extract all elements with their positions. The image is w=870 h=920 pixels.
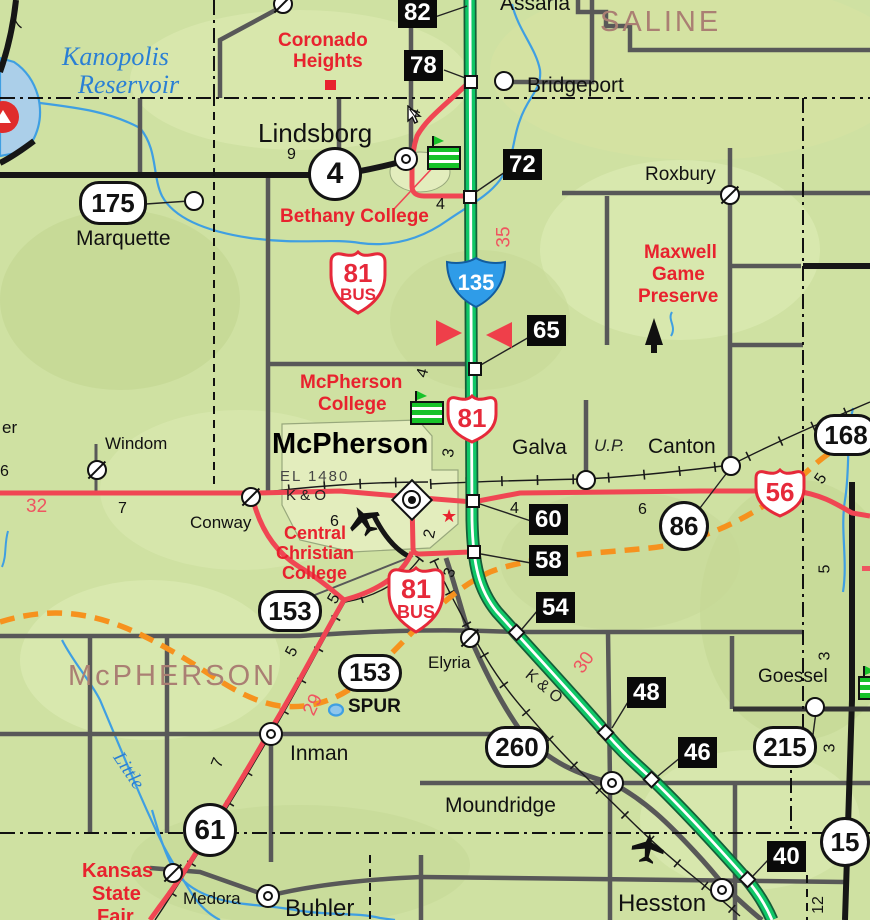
distance-7-conway: 7 [118,500,127,518]
town-circle-conway [241,487,261,507]
poi-mcpherson-college-line2: College [318,394,387,415]
city-label-medora: Medora [183,889,241,909]
exit-box-46: 46 [678,737,717,768]
city-label-elyria: Elyria [428,653,471,673]
town-circle-hesston [710,878,734,902]
landmark-star-icon: ★ [441,506,457,527]
exit-box-54: 54 [536,592,575,623]
milepost-i135-35: 35 [494,226,516,247]
rest-area-icon-east [486,322,512,348]
town-circle-roxbury [720,185,740,205]
rest-area-icon-west [436,320,462,346]
poi-fair-line1: Kansas [82,861,153,882]
exit-box-48: 48 [627,677,666,708]
shield-k15: 15 [820,817,870,867]
interchange-square-exit78 [464,75,478,89]
exit-box-78: 78 [404,50,443,81]
town-circle-galva [576,470,596,490]
city-label-assaria: Assaria [500,0,570,16]
shield-k153: 153 [258,590,322,632]
town-circle-moundridge [600,771,624,795]
poi-mcpherson-college-line1: McPherson [300,372,402,393]
bus81-north-suffix: BUS [340,286,376,304]
city-label-goessel: Goessel [758,666,828,688]
city-label-hesston: Hesston [618,890,706,918]
goessel-college-icon [858,676,870,700]
game-preserve-tree-icon [643,318,665,354]
poi-coronado-line2: Heights [293,51,363,72]
reservoir-label-line2: Reservoir [78,70,179,100]
town-circle-lindsborg [394,147,418,171]
poi-maxwell-line3: Preserve [638,286,718,307]
milepost-us56-32: 32 [26,496,47,518]
shield-k168: 168 [814,414,870,456]
distance-3-goessel-n: 3 [816,652,834,661]
city-label-conway: Conway [190,513,251,533]
city-label-marquette: Marquette [76,227,171,251]
bethany-college-icon [427,146,461,170]
bus81-north-number: 81 [344,260,373,286]
exit-box-65: 65 [527,315,566,346]
distance-12-hesston: 12 [810,896,828,914]
interchange-square-exit72 [463,190,477,204]
bus81-city-number: 81 [401,576,431,603]
distance-9-lindsborg: 9 [287,146,296,164]
bus81-city-suffix: BUS [397,603,435,622]
town-circle-windom [87,460,107,480]
shield-k215: 215 [753,726,817,768]
kansas-highway-map: 82 78 72 65 60 58 54 48 46 40 ★ 135 81 5… [0,0,870,920]
town-circle-elyria [460,628,480,648]
interchange-square-exit60 [466,494,480,508]
city-label-edge-partial: er [2,418,17,438]
town-circle-medora [163,863,183,883]
exit-box-58: 58 [529,545,568,576]
county-label-saline: SALINE [600,6,721,39]
county-seat-dot-mcpherson [408,496,416,504]
shield-k260: 260 [485,726,549,768]
poi-fair-line2: State [92,884,141,905]
exit-box-40: 40 [767,841,806,872]
town-circle-canton [721,456,741,476]
distance-6-edge-w: 6 [0,463,9,481]
shield-us81-business-north: 81 BUS [324,247,392,317]
shield-k61: 61 [183,803,237,857]
town-circle-buhler [256,884,280,908]
poi-fair-line3: Fair [97,907,134,920]
town-circle-marquette [184,191,204,211]
coronado-heights-marker-icon [325,80,336,90]
town-circle-bridgeport [494,71,514,91]
interchange-square-exit65 [468,362,482,376]
poi-maxwell-line1: Maxwell [644,242,717,263]
reservoir-label-line1: Kanopolis [62,42,169,72]
city-label-mcpherson: McPherson [272,428,428,461]
poi-central-line3: College [282,563,347,584]
milepost-tick [862,566,870,571]
exit-box-72: 72 [503,149,542,180]
exit-box-60: 60 [529,504,568,535]
shield-k175: 175 [79,181,147,225]
exit-box-82: 82 [398,0,437,28]
interchange-square-exit58 [467,545,481,559]
poi-bethany-college: Bethany College [280,206,429,227]
shield-us56: 56 [750,466,810,518]
railroad-label-up: U.P. [594,436,625,456]
distance-4-bethany-s: 4 [436,196,445,214]
airport-icon-hesston [628,830,668,867]
county-label-mcpherson: McPHERSON [68,660,277,693]
city-label-buhler: Buhler [285,895,354,920]
shield-k153-spur: 153 [338,654,402,692]
shield-i135: 135 [444,255,508,311]
distance-4-galva: 4 [510,500,519,518]
town-circle-inman [259,722,283,746]
railroad-label-ko-west: K & O [286,487,326,504]
city-label-lindsborg: Lindsborg [258,118,372,149]
poi-maxwell-line2: Game [652,264,705,285]
distance-3-goessel-s: 3 [821,744,839,753]
city-label-windom: Windom [105,434,167,454]
city-label-bridgeport: Bridgeport [527,74,624,98]
distance-5-k15-n: 5 [816,565,834,574]
distance-6-mcpherson-w: 6 [330,513,339,531]
town-circle-goessel [805,697,825,717]
shield-k4: 4 [308,147,362,201]
shield-k86: 86 [659,501,709,551]
city-label-canton: Canton [648,435,716,459]
city-label-moundridge: Moundridge [445,794,556,818]
city-label-roxbury: Roxbury [645,164,716,186]
poi-coronado-line1: Coronado [278,30,368,51]
elevation-label: EL 1480 [280,468,349,485]
distance-6-galva: 6 [638,501,647,519]
shield-us81: 81 [442,392,502,444]
spur-banner-label: SPUR [348,696,401,718]
mcpherson-college-icon [410,401,444,425]
city-label-inman: Inman [290,742,348,766]
poi-central-line2: Christian [276,543,354,564]
city-label-galva: Galva [512,436,567,460]
